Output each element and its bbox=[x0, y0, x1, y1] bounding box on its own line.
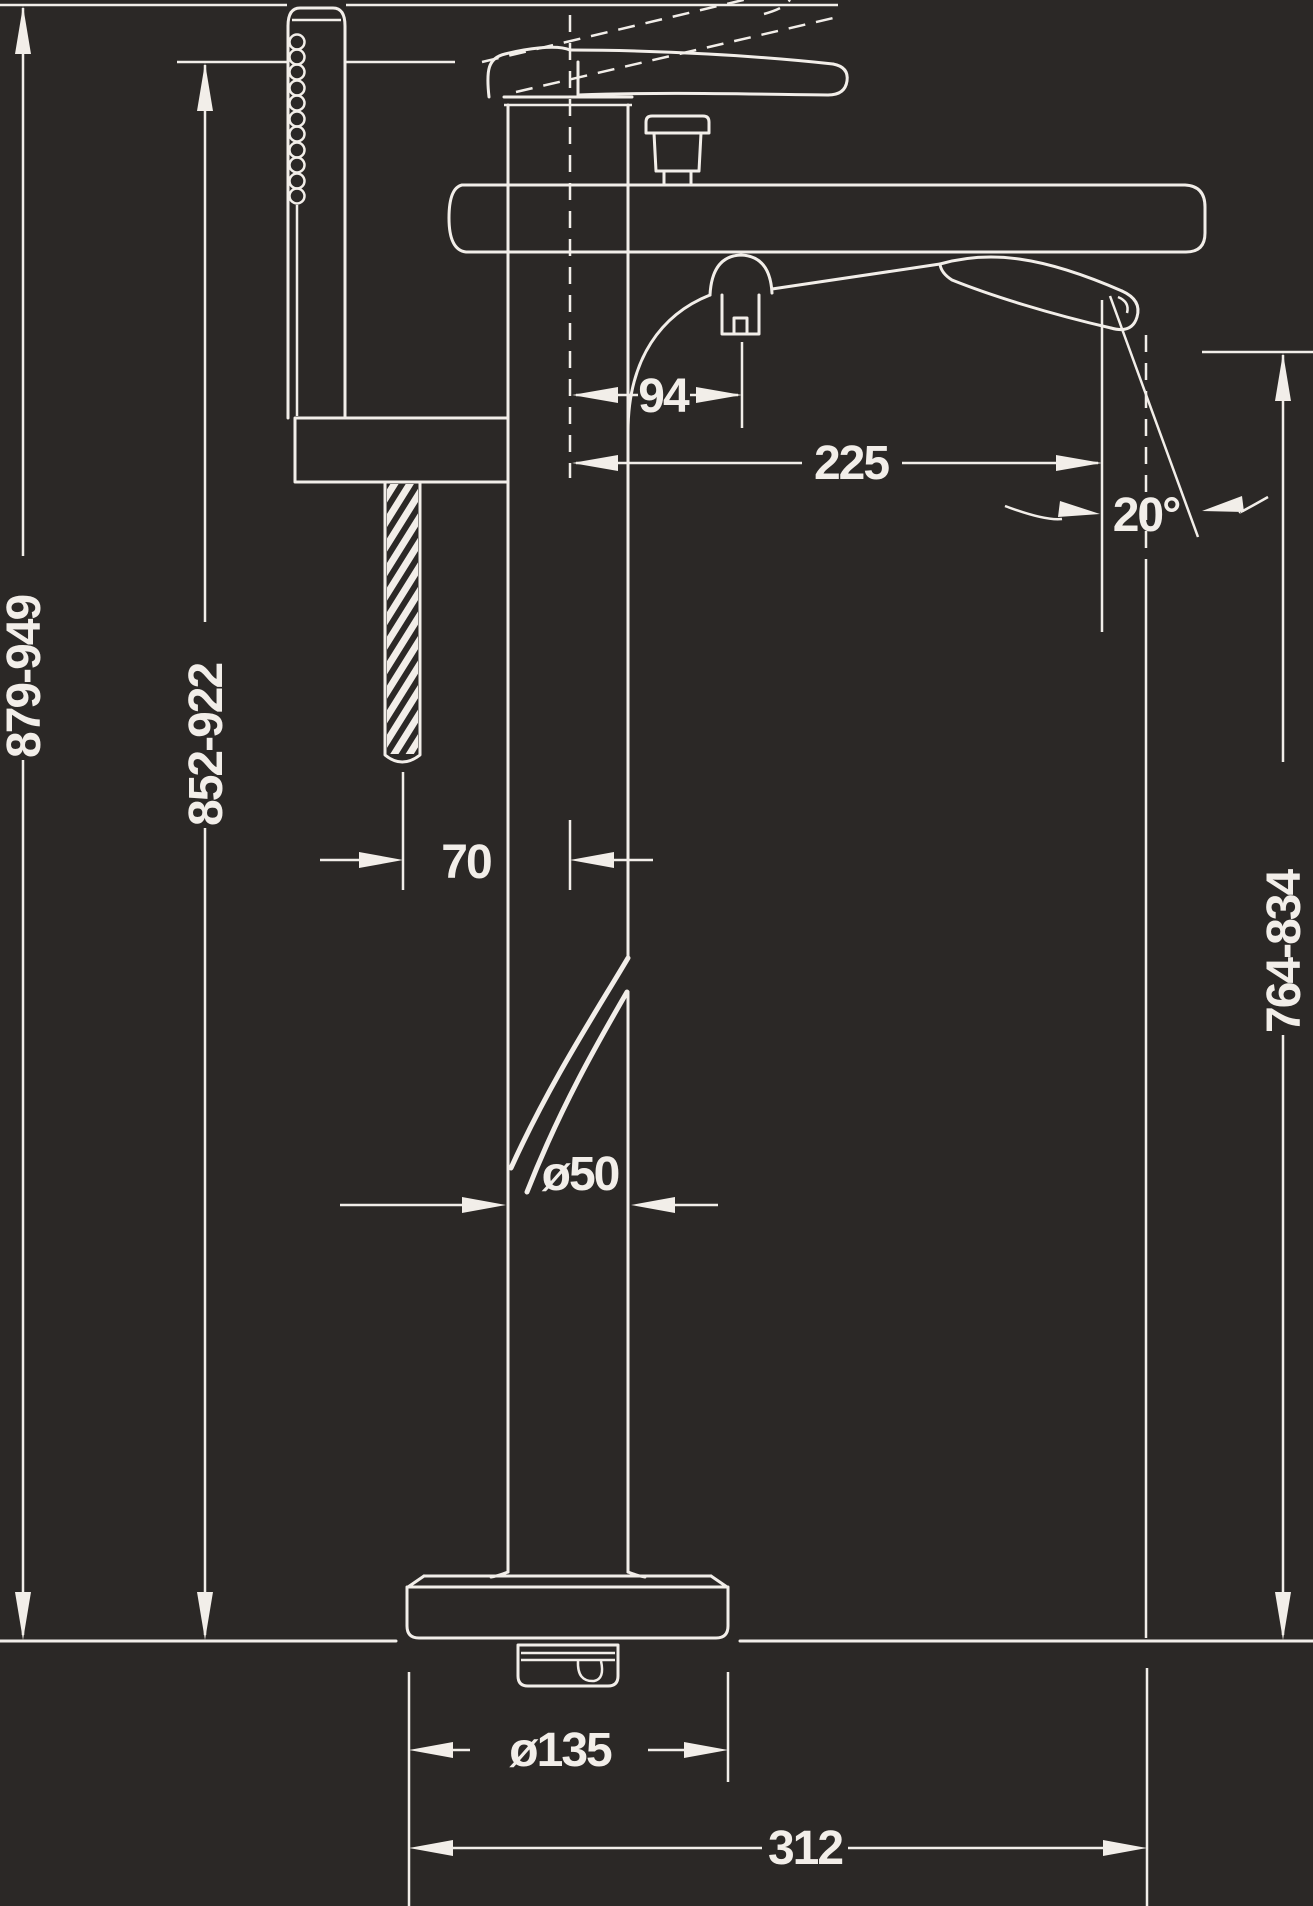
spout-angle-label: 20° bbox=[1113, 489, 1180, 542]
drawing-page: 879-949 852-922 764-834 94 225 20° bbox=[0, 0, 1313, 1906]
shower-handle-hatch bbox=[387, 484, 418, 754]
outlet-height-label: 764-834 bbox=[1258, 869, 1311, 1033]
handshower-offset-label: 70 bbox=[441, 836, 491, 889]
base-diameter-label: ø135 bbox=[509, 1724, 612, 1777]
spout-reach-label: 225 bbox=[814, 437, 889, 490]
diverter-offset-label: 94 bbox=[638, 370, 690, 423]
column-height-label: 852-922 bbox=[180, 664, 233, 826]
lever-bottom-edge bbox=[578, 93, 828, 95]
technical-drawing: 879-949 852-922 764-834 94 225 20° bbox=[0, 0, 1313, 1906]
column-diameter-label: ø50 bbox=[542, 1148, 619, 1201]
background bbox=[0, 0, 1313, 1906]
projection-label: 312 bbox=[768, 1822, 842, 1875]
overall-height-label: 879-949 bbox=[0, 596, 51, 758]
